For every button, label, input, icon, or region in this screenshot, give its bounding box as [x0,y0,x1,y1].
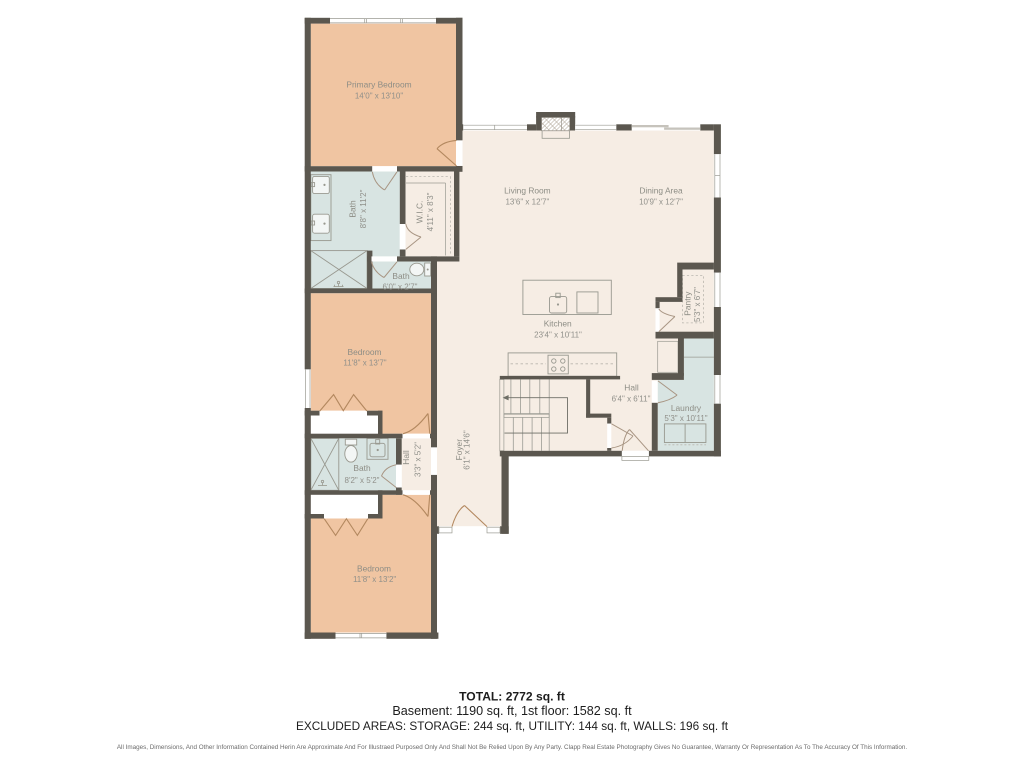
svg-text:6'1" x 14'6": 6'1" x 14'6" [463,430,472,470]
svg-text:Basement: 1190 sq. ft, 1st flo: Basement: 1190 sq. ft, 1st floor: 1582 s… [392,704,632,718]
svg-text:EXCLUDED AREAS: STORAGE: 244 s: EXCLUDED AREAS: STORAGE: 244 sq. ft, UTI… [296,719,729,733]
svg-text:Kitchen: Kitchen [544,319,572,329]
svg-text:Bath: Bath [392,271,410,281]
svg-text:11'8" x 13'7": 11'8" x 13'7" [343,359,386,368]
svg-text:14'0" x 13'10": 14'0" x 13'10" [355,92,403,101]
svg-text:10'9" x 12'7": 10'9" x 12'7" [639,198,683,207]
svg-text:6'4" x 6'11": 6'4" x 6'11" [612,395,651,404]
svg-text:11'8" x 13'2": 11'8" x 13'2" [353,575,396,584]
svg-text:Hall: Hall [401,450,411,465]
svg-text:Hall: Hall [624,383,639,393]
svg-text:TOTAL: 2772 sq. ft: TOTAL: 2772 sq. ft [459,690,565,704]
svg-text:8'8" x 11'2": 8'8" x 11'2" [359,189,368,228]
svg-text:Bedroom: Bedroom [348,347,382,357]
svg-text:Bath: Bath [353,463,371,473]
svg-text:23'4" x 10'11": 23'4" x 10'11" [534,331,582,340]
svg-text:3'3" x 5'2": 3'3" x 5'2" [414,442,423,477]
svg-text:Dining Area: Dining Area [639,186,683,196]
svg-text:Living Room: Living Room [504,186,551,196]
svg-text:Laundry: Laundry [671,403,702,413]
svg-text:6'0" x 2'7": 6'0" x 2'7" [383,283,418,292]
svg-text:All Images, Dimensions, And Ot: All Images, Dimensions, And Other Inform… [117,744,908,751]
svg-text:8'2" x 5'2": 8'2" x 5'2" [345,476,380,485]
svg-text:Bedroom: Bedroom [357,564,391,574]
svg-text:13'6" x 12'7": 13'6" x 12'7" [505,198,549,207]
svg-text:W.I.C.: W.I.C. [415,201,425,224]
svg-text:5'3" x 10'11": 5'3" x 10'11" [664,414,707,423]
svg-text:Pantry: Pantry [683,291,693,316]
svg-text:Bath: Bath [348,200,358,218]
svg-text:Primary Bedroom: Primary Bedroom [346,80,411,90]
svg-text:4'11" x 8'3": 4'11" x 8'3" [426,192,435,231]
svg-text:5'3" x 6'7": 5'3" x 6'7" [693,287,702,322]
